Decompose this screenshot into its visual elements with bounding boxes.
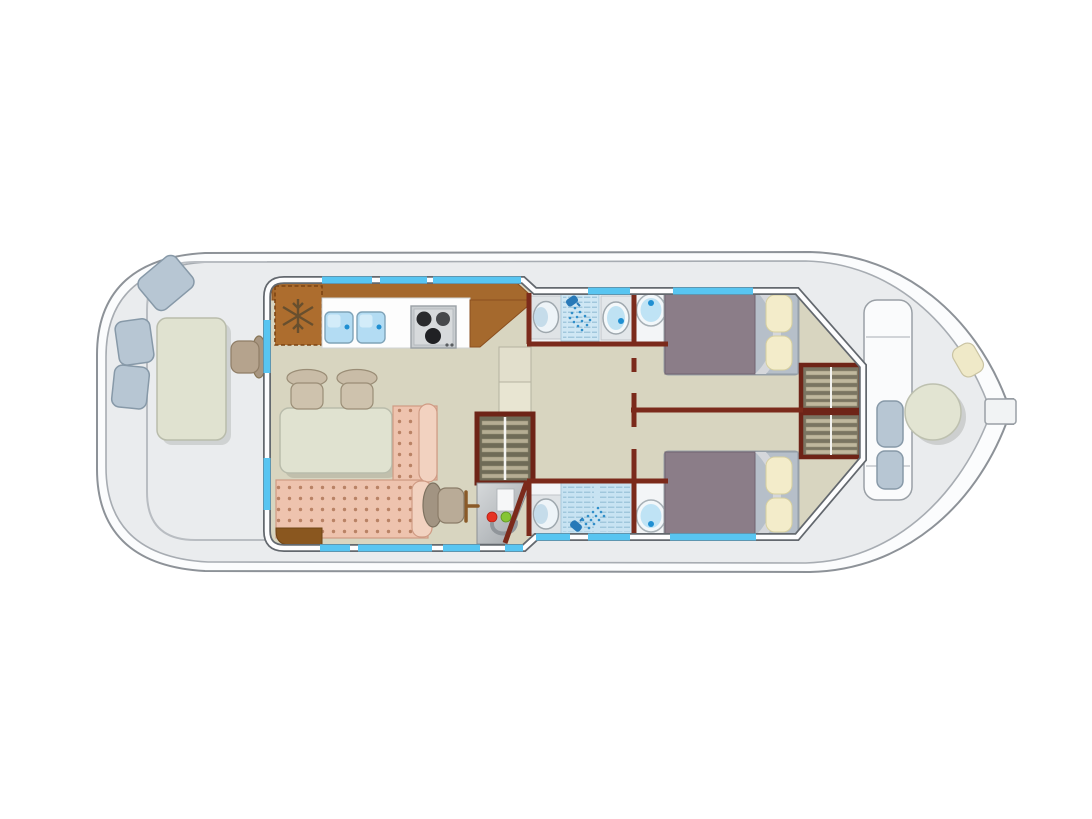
galley — [272, 283, 529, 348]
shower-room-forward — [531, 293, 666, 343]
indicator-green — [501, 512, 511, 522]
bow-table — [157, 318, 226, 440]
burner — [425, 328, 441, 344]
flush-dot — [648, 300, 654, 306]
duvet — [665, 452, 755, 536]
bow-stool-seat — [231, 341, 259, 373]
pillow — [766, 498, 792, 532]
toilet-forward — [637, 294, 666, 326]
bow-seat-2 — [114, 318, 155, 366]
washbasin-2 — [601, 296, 632, 340]
stove — [411, 306, 456, 348]
faucet-dot — [377, 325, 382, 330]
pillow — [766, 457, 792, 494]
cabin-forward-bed — [664, 289, 799, 375]
dining-chair-2 — [337, 370, 377, 410]
dining-table — [280, 408, 392, 473]
boat-floor-plan — [0, 0, 1092, 819]
entry-steps — [499, 347, 531, 417]
washbasin-3 — [531, 495, 561, 534]
sofa-armrest-vertical — [419, 404, 437, 482]
washbasin-1 — [531, 296, 561, 339]
stove-knob — [445, 343, 448, 346]
stove-knob — [450, 343, 453, 346]
faucet-dot — [345, 325, 350, 330]
indicator-red — [487, 512, 497, 522]
sink-left — [325, 312, 353, 343]
wardrobe-aft — [801, 413, 861, 457]
stern-seat-2 — [877, 451, 903, 489]
tiller — [985, 399, 1016, 424]
flush-dot — [648, 521, 654, 527]
shower-aft — [561, 483, 632, 534]
wardrobe-forward — [801, 365, 861, 410]
sink-right — [357, 312, 385, 343]
helm-chair — [423, 483, 464, 527]
duvet — [665, 290, 755, 374]
floor-plan-canvas — [0, 0, 1092, 819]
shower-forward — [561, 294, 599, 341]
stern-seat-1 — [877, 401, 903, 447]
bow-seat-3 — [111, 364, 150, 409]
cabin-aft-bed — [664, 451, 799, 537]
shower-room-aft — [531, 483, 666, 534]
faucet-dot — [618, 318, 624, 324]
companionway-stairs — [477, 414, 533, 483]
pillow — [766, 336, 792, 370]
toilet-aft — [637, 500, 666, 532]
stern-round-table — [905, 384, 961, 440]
pillow — [766, 295, 792, 332]
corner-cabinet — [276, 528, 322, 545]
dining-chair-1 — [287, 370, 327, 410]
panel-switch — [497, 489, 514, 511]
burner — [436, 312, 450, 326]
burner — [417, 312, 432, 327]
